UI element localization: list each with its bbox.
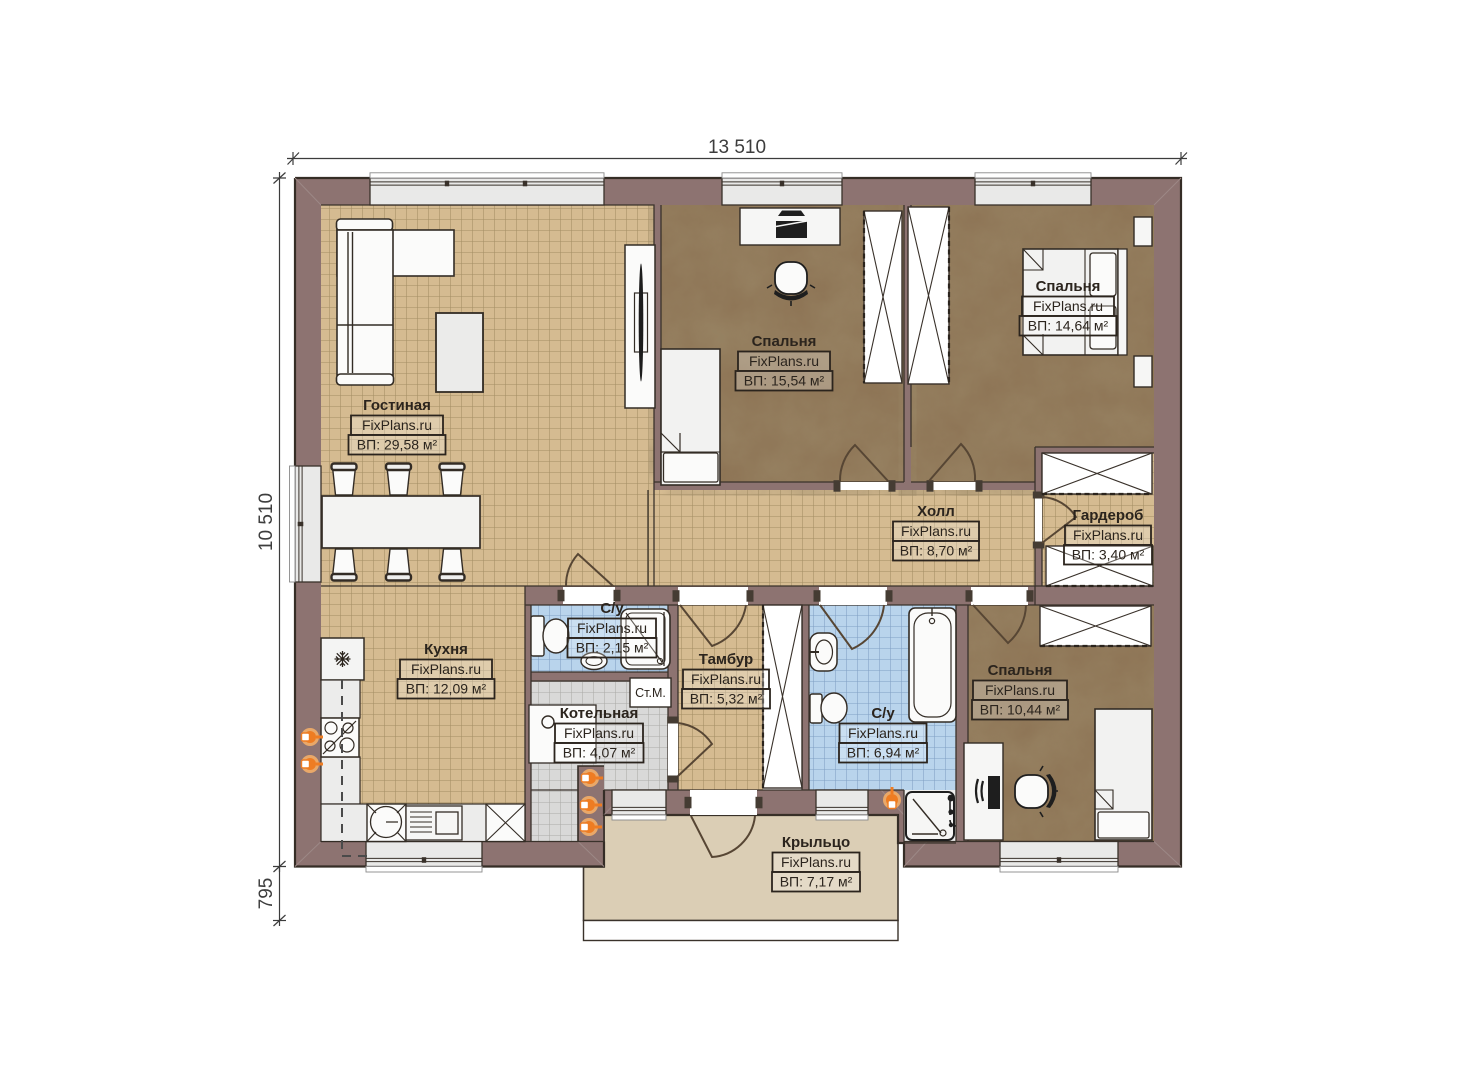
svg-text:795: 795 (256, 878, 277, 910)
svg-text:ВП: 29,58 м²: ВП: 29,58 м² (357, 437, 438, 453)
svg-text:FixPlans.ru: FixPlans.ru (411, 661, 481, 677)
svg-text:ВП: 10,44 м²: ВП: 10,44 м² (980, 702, 1061, 718)
svg-text:FixPlans.ru: FixPlans.ru (985, 682, 1055, 698)
svg-text:Спальня: Спальня (988, 662, 1053, 679)
svg-text:Гостиная: Гостиная (363, 397, 431, 414)
svg-text:ВП: 3,40 м²: ВП: 3,40 м² (1072, 547, 1145, 563)
svg-text:Котельная: Котельная (560, 705, 639, 722)
svg-text:FixPlans.ru: FixPlans.ru (781, 854, 851, 870)
svg-text:ВП: 6,94 м²: ВП: 6,94 м² (847, 745, 920, 761)
svg-text:Кухня: Кухня (424, 641, 468, 658)
svg-text:Крыльцо: Крыльцо (782, 834, 850, 851)
svg-text:FixPlans.ru: FixPlans.ru (691, 671, 761, 687)
svg-text:Холл: Холл (917, 503, 955, 520)
svg-text:ВП: 14,64 м²: ВП: 14,64 м² (1028, 318, 1109, 334)
svg-text:ВП: 12,09 м²: ВП: 12,09 м² (406, 681, 487, 697)
svg-text:Гардероб: Гардероб (1073, 507, 1144, 524)
svg-text:FixPlans.ru: FixPlans.ru (901, 523, 971, 539)
svg-text:Спальня: Спальня (752, 333, 817, 350)
svg-text:13 510: 13 510 (708, 137, 766, 158)
svg-text:ВП: 2,15 м²: ВП: 2,15 м² (576, 640, 649, 656)
svg-text:FixPlans.ru: FixPlans.ru (1033, 298, 1103, 314)
svg-text:Спальня: Спальня (1036, 278, 1101, 295)
svg-text:FixPlans.ru: FixPlans.ru (1073, 527, 1143, 543)
svg-text:ВП: 7,17 м²: ВП: 7,17 м² (780, 874, 853, 890)
svg-text:Ст.М.: Ст.М. (635, 686, 666, 700)
svg-text:FixPlans.ru: FixPlans.ru (577, 620, 647, 636)
svg-text:FixPlans.ru: FixPlans.ru (362, 417, 432, 433)
svg-text:ВП: 8,70 м²: ВП: 8,70 м² (900, 543, 973, 559)
svg-text:С/у: С/у (871, 705, 895, 722)
svg-text:FixPlans.ru: FixPlans.ru (564, 725, 634, 741)
svg-text:FixPlans.ru: FixPlans.ru (749, 353, 819, 369)
svg-text:Тамбур: Тамбур (699, 651, 753, 668)
svg-text:С/у: С/у (600, 600, 624, 617)
svg-text:FixPlans.ru: FixPlans.ru (848, 725, 918, 741)
svg-text:ВП: 15,54 м²: ВП: 15,54 м² (744, 373, 825, 389)
svg-text:10 510: 10 510 (256, 493, 277, 551)
svg-text:ВП: 4,07 м²: ВП: 4,07 м² (563, 745, 636, 761)
svg-text:ВП: 5,32 м²: ВП: 5,32 м² (690, 691, 763, 707)
